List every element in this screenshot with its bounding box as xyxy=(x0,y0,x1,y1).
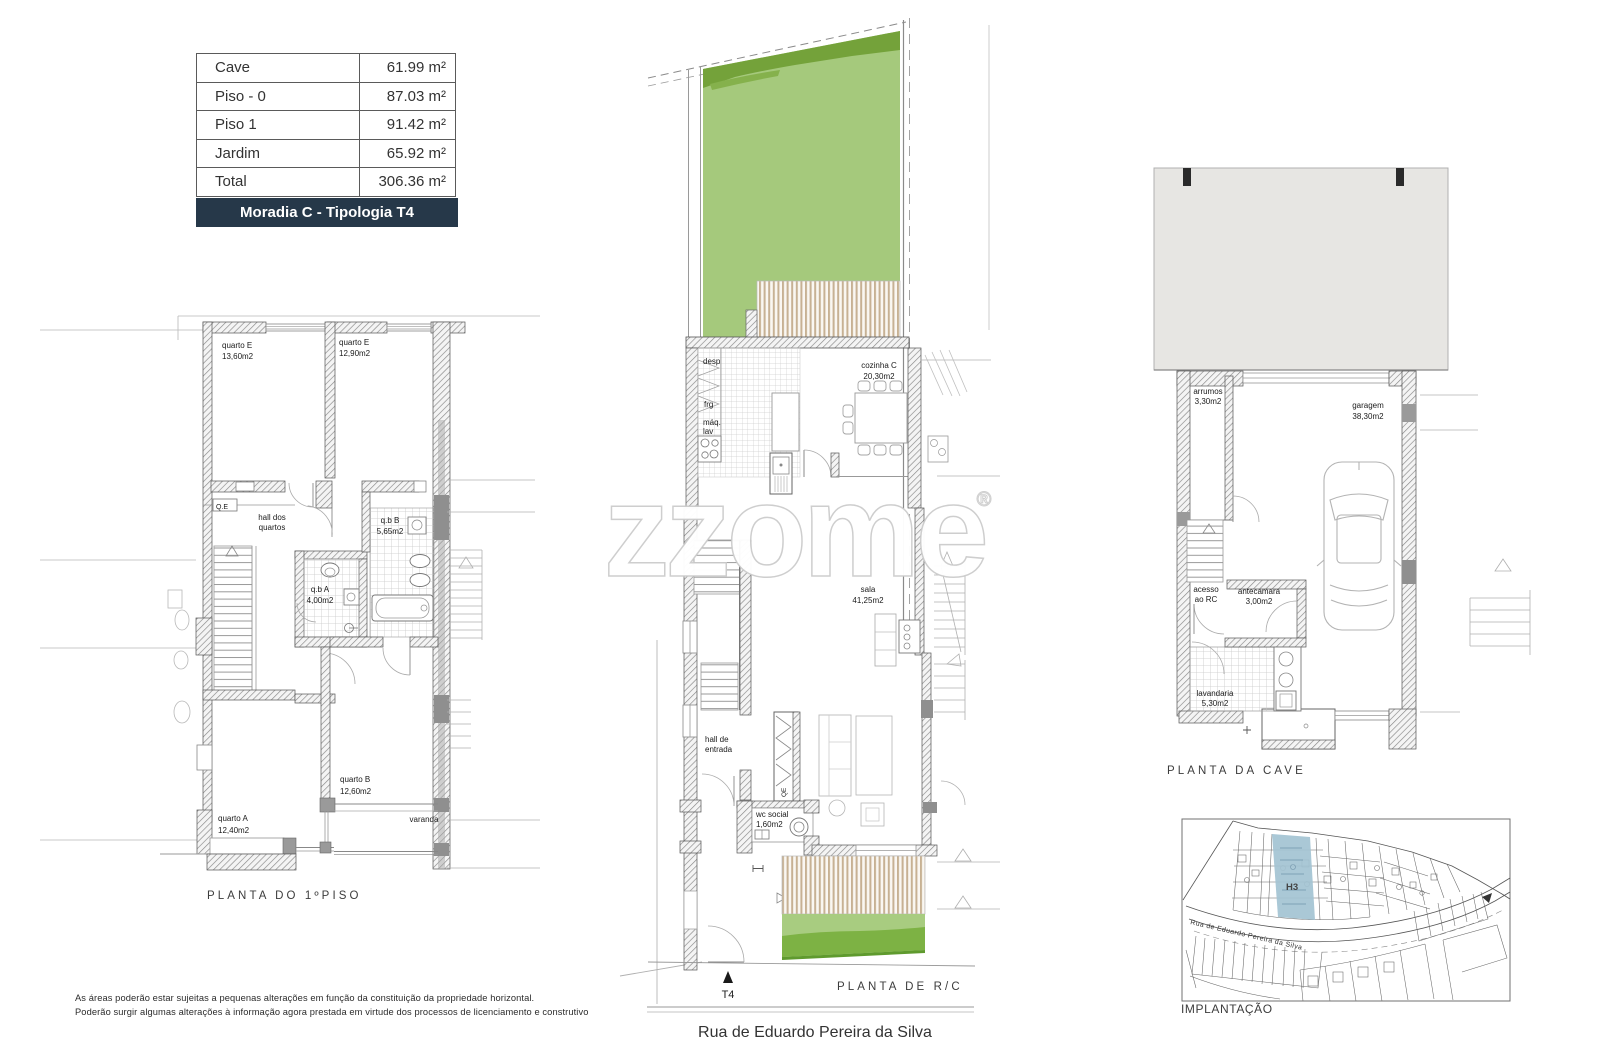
svg-text:quartos: quartos xyxy=(259,523,286,532)
svg-text:12,60m2: 12,60m2 xyxy=(340,787,372,796)
svg-text:quarto E: quarto E xyxy=(339,338,369,347)
svg-text:1,60m2: 1,60m2 xyxy=(756,820,783,829)
svg-text:entrada: entrada xyxy=(705,745,733,754)
svg-text:antecamara: antecamara xyxy=(1238,587,1281,596)
svg-text:acesso: acesso xyxy=(1193,585,1219,594)
svg-text:5,65m2: 5,65m2 xyxy=(377,527,404,536)
svg-text:varanda: varanda xyxy=(410,815,439,824)
svg-text:hall de: hall de xyxy=(705,735,729,744)
svg-text:®: ® xyxy=(977,489,992,511)
svg-text:38,30m2: 38,30m2 xyxy=(1352,412,1384,421)
svg-text:T4: T4 xyxy=(722,989,735,1001)
svg-text:cozinha C: cozinha C xyxy=(861,361,897,370)
svg-text:5,30m2: 5,30m2 xyxy=(1202,699,1229,708)
svg-text:Rua de Eduardo Pereira da Silv: Rua de Eduardo Pereira da Silva xyxy=(698,1024,932,1041)
svg-text:q.b B: q.b B xyxy=(381,516,400,525)
svg-text:QE: QE xyxy=(781,787,788,797)
svg-text:12,40m2: 12,40m2 xyxy=(218,826,250,835)
svg-text:arrumos: arrumos xyxy=(1193,387,1222,396)
svg-text:20,30m2: 20,30m2 xyxy=(863,372,895,381)
svg-text:lavandaria: lavandaria xyxy=(1197,689,1234,698)
svg-text:frg: frg xyxy=(704,400,713,409)
svg-text:zzome: zzome xyxy=(604,457,985,604)
svg-text:12,90m2: 12,90m2 xyxy=(339,349,371,358)
svg-text:desp: desp xyxy=(703,357,721,366)
svg-text:3,30m2: 3,30m2 xyxy=(1195,397,1222,406)
svg-text:wc social: wc social xyxy=(755,810,789,819)
svg-text:ao RC: ao RC xyxy=(1195,595,1218,604)
svg-text:máq.: máq. xyxy=(703,418,721,427)
svg-text:3,00m2: 3,00m2 xyxy=(1246,597,1273,606)
svg-text:H3: H3 xyxy=(1286,882,1298,893)
svg-text:Q.E: Q.E xyxy=(216,504,228,511)
svg-text:PLANTA DO 1ºPISO: PLANTA DO 1ºPISO xyxy=(207,890,362,902)
svg-text:PLANTA DA CAVE: PLANTA DA CAVE xyxy=(1167,765,1306,777)
svg-text:garagem: garagem xyxy=(1352,401,1384,410)
svg-text:quarto A: quarto A xyxy=(218,814,248,823)
svg-text:4,00m2: 4,00m2 xyxy=(307,596,334,605)
svg-text:13,60m2: 13,60m2 xyxy=(222,352,254,361)
svg-text:lav: lav xyxy=(703,427,713,436)
svg-text:PLANTA DE R/C: PLANTA DE R/C xyxy=(837,981,963,993)
svg-text:quarto E: quarto E xyxy=(222,341,252,350)
svg-text:hall dos: hall dos xyxy=(258,513,286,522)
svg-text:IMPLANTAÇÃO: IMPLANTAÇÃO xyxy=(1181,1002,1273,1016)
svg-text:q.b A: q.b A xyxy=(311,585,330,594)
svg-text:quarto B: quarto B xyxy=(340,775,370,784)
